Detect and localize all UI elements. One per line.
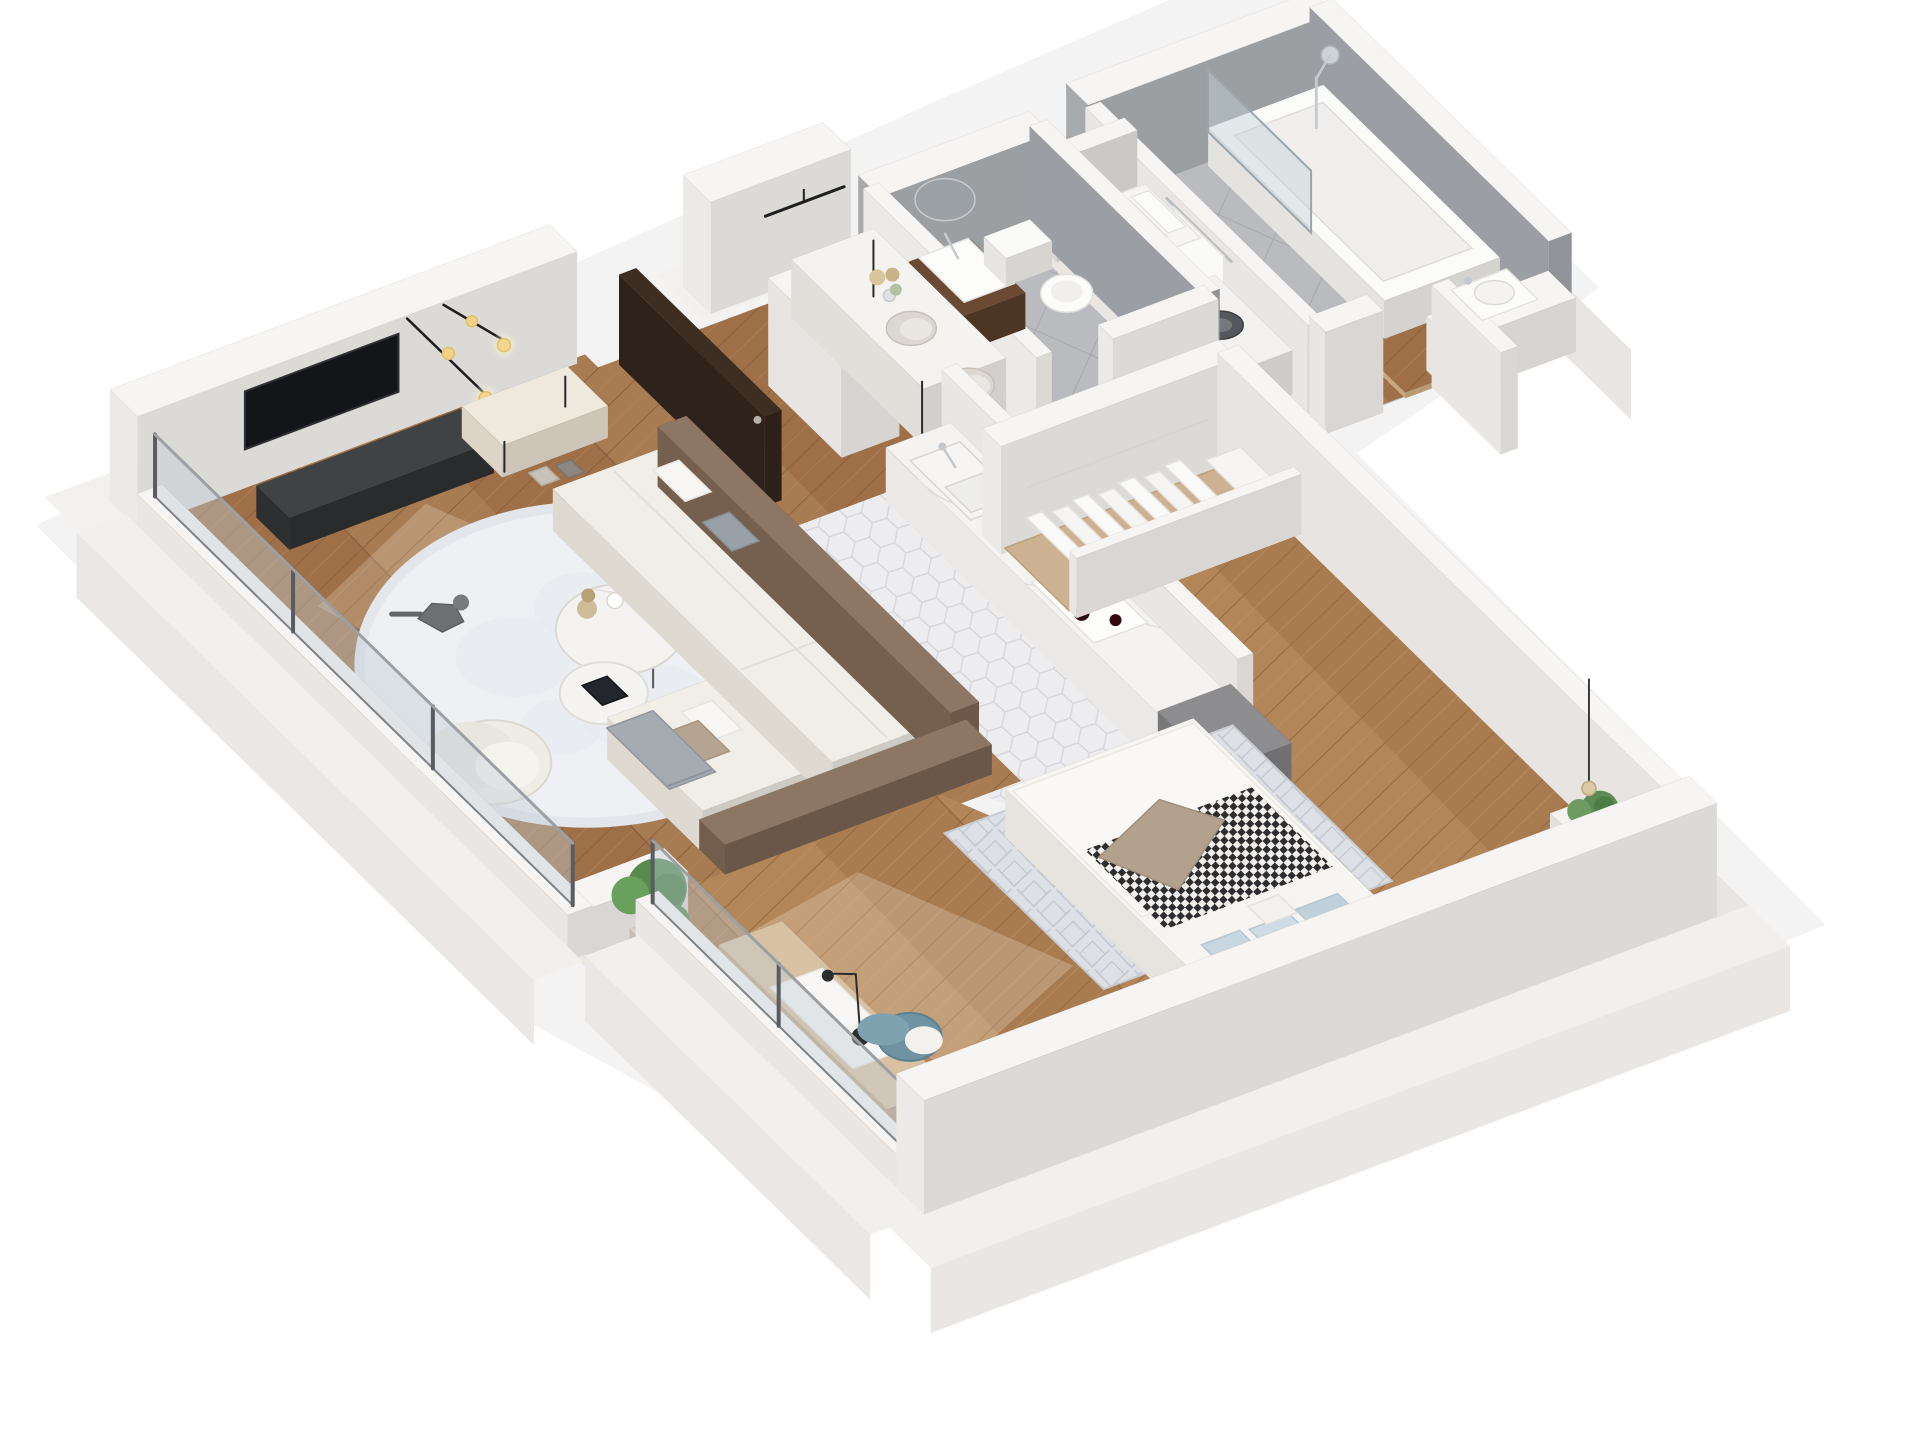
- light-bulb: [497, 339, 510, 352]
- pendant-light-bulb: [1582, 781, 1596, 795]
- toilet-seat: [1051, 280, 1083, 302]
- screenshot-canvas: [0, 0, 1920, 1440]
- light-bulb: [466, 316, 477, 327]
- light-bulb: [442, 347, 454, 359]
- corridor-end-wall-face: [1501, 346, 1518, 454]
- wc-round-mirror: [915, 179, 975, 221]
- floor-plan-render: [0, 0, 1920, 1440]
- dried-flowers: [869, 269, 885, 285]
- teal-chair-cushion: [905, 1026, 943, 1054]
- bathroom-sink-faucet: [1464, 277, 1472, 285]
- bathroom-sink-basin: [1474, 281, 1514, 305]
- wardrobe-front-lip-face: [1069, 551, 1076, 618]
- dried-flowers: [890, 284, 902, 296]
- hob-burner: [1110, 614, 1122, 626]
- dried-flowers: [581, 589, 595, 603]
- entry-door-leaf-face: [764, 410, 781, 507]
- dining-chair-seat: [900, 318, 932, 340]
- desk-lamp-head: [822, 970, 834, 982]
- bedroom-wall-top-face: [983, 429, 1001, 555]
- dried-flowers: [885, 268, 899, 282]
- door-handle: [754, 416, 762, 424]
- teal-chair-back: [857, 1013, 909, 1045]
- cat-head: [453, 595, 469, 611]
